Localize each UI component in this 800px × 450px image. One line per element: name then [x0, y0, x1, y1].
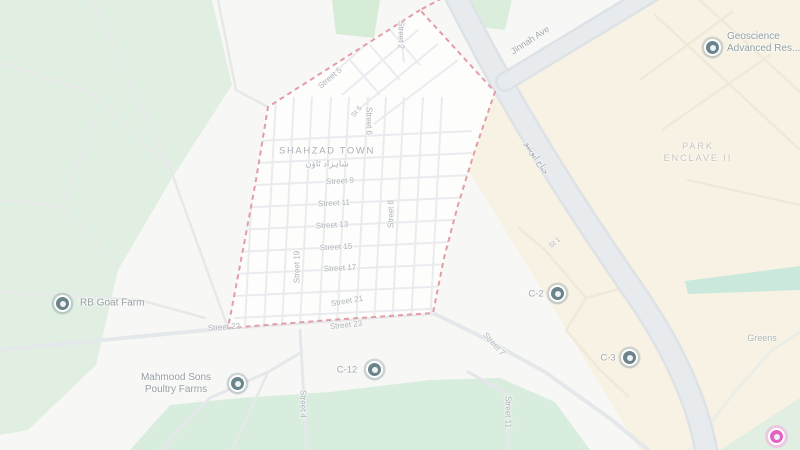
street-label: Street 9: [326, 176, 354, 186]
street-label: Street 8: [387, 200, 396, 228]
poi-marker-pink[interactable]: [768, 428, 785, 445]
poi-marker-c2[interactable]: [549, 285, 566, 302]
poi-label-line2: Poultry Farms: [141, 384, 211, 396]
street-label: Street 13: [316, 220, 349, 231]
poi-glyph: [235, 381, 241, 387]
town-name-urdu-label: شاہزاد ٹاؤن: [305, 159, 348, 170]
poi-glyph: [774, 434, 780, 440]
area-label-park-enclave: PARK ENCLAVE II: [664, 140, 733, 164]
poi-label-line1: Geoscience: [727, 31, 800, 43]
map-viewport[interactable]: { "town": { "name": "SHAHZAD TOWN", "nam…: [0, 0, 800, 450]
poi-label-line2: Advanced Res...: [727, 43, 800, 55]
area-label-greens: Greens: [747, 333, 777, 343]
poi-glyph: [60, 301, 66, 307]
poi-glyph: [555, 291, 561, 297]
poi-label-c3[interactable]: C-3: [600, 353, 615, 364]
road-label-jinnah-ave-urdu: جناح ایوینیو: [523, 140, 550, 176]
street-label: Street 6: [365, 107, 374, 135]
area-label-line2: ENCLAVE II: [664, 152, 733, 164]
street-label: Street 4: [299, 390, 308, 418]
poi-label-line1: Mahmood Sons: [141, 372, 211, 384]
street-label: Street 23: [329, 319, 362, 331]
street-label: St 5: [350, 105, 363, 119]
street-label: Street 11: [504, 396, 513, 428]
street-label: Street 19: [293, 251, 302, 283]
town-name-label[interactable]: SHAHZAD TOWN: [279, 146, 375, 157]
street-label: Street 22: [207, 321, 240, 332]
poi-marker-mahmood-sons[interactable]: [229, 375, 246, 392]
street-label: Street 21: [330, 294, 364, 309]
map-labels: Street 2 Street 5 St 5 Street 6 Street 9…: [0, 0, 800, 450]
poi-marker-c12[interactable]: [366, 361, 383, 378]
street-label: Street 15: [320, 242, 353, 253]
poi-glyph: [372, 367, 378, 373]
street-label: Street 5: [316, 66, 343, 91]
street-label: Street 17: [324, 263, 357, 274]
poi-label-c12[interactable]: C-12: [337, 365, 358, 376]
map-canvas[interactable]: Street 2 Street 5 St 5 Street 6 Street 9…: [0, 0, 800, 450]
road-label-jinnah-ave: Jinnah Ave: [509, 24, 551, 56]
street-label: Street 11: [318, 198, 350, 209]
poi-glyph: [627, 355, 633, 361]
street-label: St 1: [548, 236, 562, 249]
poi-label-c2[interactable]: C-2: [528, 289, 543, 300]
poi-label-mahmood-sons[interactable]: Mahmood Sons Poultry Farms: [141, 372, 211, 396]
poi-marker-rb-goat-farm[interactable]: [54, 295, 71, 312]
poi-marker-geoscience[interactable]: [704, 39, 721, 56]
poi-glyph: [710, 45, 716, 51]
street-label: Street 2: [397, 21, 406, 49]
poi-label-geoscience[interactable]: Geoscience Advanced Res...: [727, 31, 800, 55]
poi-marker-c3[interactable]: [621, 349, 638, 366]
poi-label-rb-goat-farm[interactable]: RB Goat Farm: [80, 298, 144, 309]
area-label-line1: PARK: [664, 140, 733, 152]
street-label: Street 7: [481, 331, 506, 358]
